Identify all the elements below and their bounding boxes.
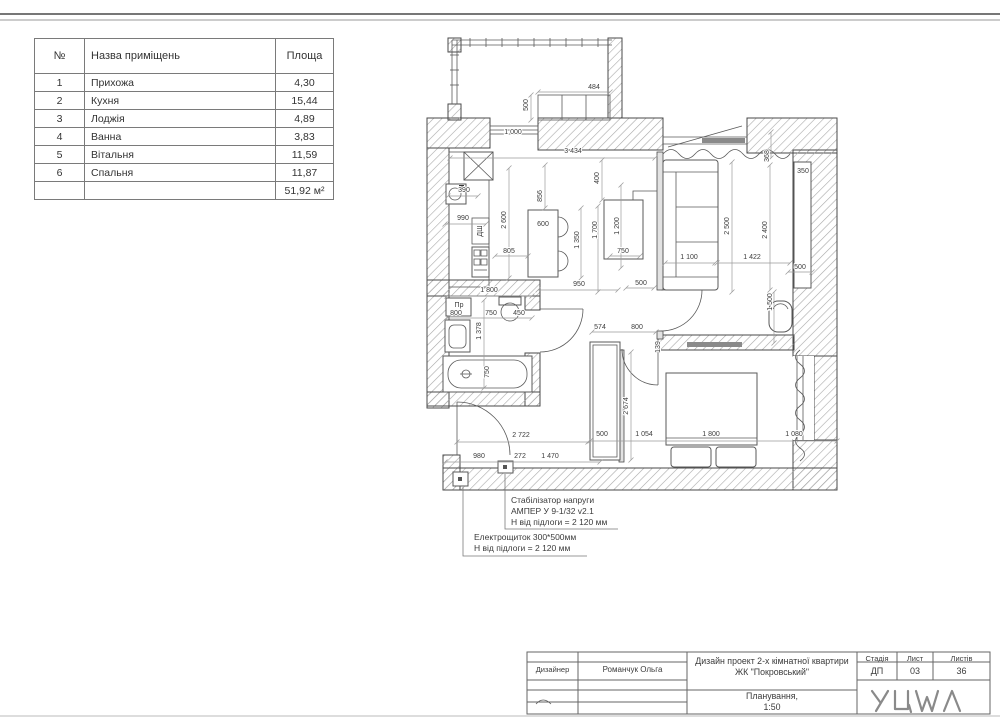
sofa — [663, 160, 718, 290]
designer-name: Романчук Ольга — [578, 665, 687, 674]
dimension-label: 350 — [797, 168, 809, 175]
dimension-label: Пр — [455, 302, 464, 309]
bathroom-door — [540, 309, 583, 352]
tv-unit — [604, 191, 657, 259]
table-cell-area: 3,83 — [276, 128, 334, 146]
table-header-row: № Назва приміщень Площа — [35, 39, 334, 74]
table-cell-name: Лоджія — [85, 110, 276, 128]
stabilizer-note-line2: АМПЕР У 9-1/32 v2.1 — [511, 506, 607, 517]
hall-wardrobe — [590, 342, 620, 460]
dimension-label: 500 — [596, 431, 608, 438]
dimension-label: 800 — [631, 324, 643, 331]
table-cell-num: 4 — [35, 128, 85, 146]
table-cell-area: 11,59 — [276, 146, 334, 164]
table-row: 4Ванна3,83 — [35, 128, 334, 146]
dimension-label: 1 350 — [574, 231, 581, 249]
dimension-label: 1 470 — [541, 453, 559, 460]
total-area-cell: 51,92 м² — [276, 182, 334, 200]
table-cell-num: 3 — [35, 110, 85, 128]
drawing-name: Планування, 1:50 — [689, 691, 855, 713]
dimension-label: 1 100 — [680, 254, 698, 261]
table-row: 2Кухня15,44 — [35, 92, 334, 110]
bath-sink — [445, 320, 470, 352]
room-areas-table: № Назва приміщень Площа 1Прихожа4,302Кух… — [34, 38, 334, 200]
dimension-label: 484 — [588, 84, 600, 91]
dimension-label: 750 — [484, 366, 491, 378]
dimension-label: 805 — [503, 248, 515, 255]
drawing-sheet: { "room_table": { "headers": {"num": "№"… — [0, 0, 1000, 727]
electrical-panel-box — [453, 472, 468, 486]
stabilizer-note-line1: Стабілізатор напруги — [511, 495, 607, 506]
electrical-panel-note: Електрощиток 300*500мм Н від підлоги = 2… — [474, 532, 576, 554]
stage-label: Стадія — [857, 654, 897, 663]
dimension-label: 1 000 — [504, 129, 522, 136]
col-header-name: Назва приміщень — [85, 39, 276, 74]
table-cell-num: 1 — [35, 74, 85, 92]
bedroom-door — [622, 349, 658, 385]
table-cell-num: 6 — [35, 164, 85, 182]
dimension-label: 2 674 — [623, 397, 630, 415]
dimension-label: 1 200 — [614, 217, 621, 235]
sheets-label: Листів — [933, 654, 990, 663]
dimension-label: 980 — [473, 453, 485, 460]
dimension-label: 1 500 — [767, 293, 774, 311]
stabilizer-box — [498, 461, 513, 473]
toilet — [499, 297, 521, 321]
table-cell-name: Вітальня — [85, 146, 276, 164]
dimension-label: 272 — [514, 453, 526, 460]
bed — [666, 373, 757, 467]
dimension-label: 950 — [573, 281, 585, 288]
dimension-label: 3 434 — [564, 148, 582, 155]
dimension-label: 500 — [523, 99, 530, 111]
stove — [472, 247, 489, 277]
table-row: 1Прихожа4,30 — [35, 74, 334, 92]
table-cell-name: Ванна — [85, 128, 276, 146]
entrance-door — [457, 402, 510, 455]
table-cell-num: 5 — [35, 146, 85, 164]
dimension-label: 600 — [537, 221, 549, 228]
stabilizer-note-line3: Н від підлоги = 2 120 мм — [511, 517, 607, 528]
table-total-row: 51,92 м² — [35, 182, 334, 200]
sheet-value: 03 — [897, 666, 933, 676]
dimension-label: 1 080 — [785, 431, 803, 438]
dimension-label: 574 — [594, 324, 606, 331]
drawing-name-line1: Планування, — [689, 691, 855, 702]
dimension-label: 2 400 — [762, 221, 769, 239]
dimension-label: 990 — [457, 215, 469, 222]
project-title-line1: Дизайн проект 2-х кімнатної квартири — [689, 656, 855, 667]
dimension-label: 1 800 — [702, 431, 720, 438]
table-cell-area: 4,30 — [276, 74, 334, 92]
empty-cell — [85, 182, 276, 200]
dimension-label: 2 500 — [724, 217, 731, 235]
dimension-label: 139 — [655, 341, 662, 353]
dimension-label: 400 — [594, 172, 601, 184]
designer-label: Дизайнер — [527, 665, 578, 674]
project-title: Дизайн проект 2-х кімнатної квартири ЖК … — [689, 656, 855, 678]
dimension-label: 368 — [764, 150, 771, 162]
dimension-label: 390 — [458, 187, 470, 194]
dimension-label: 800 — [450, 310, 462, 317]
dimension-label: 500 — [794, 264, 806, 271]
dimension-label: 1 422 — [743, 254, 761, 261]
sheet-label: Лист — [897, 654, 933, 663]
table-row: 3Лоджія4,89 — [35, 110, 334, 128]
table-cell-area: 15,44 — [276, 92, 334, 110]
dimension-label: 1 800 — [480, 287, 498, 294]
stage-value: ДП — [857, 666, 897, 676]
dimension-label: 1 054 — [635, 431, 653, 438]
sheets-value: 36 — [933, 666, 990, 676]
project-title-line2: ЖК "Покровський" — [689, 667, 855, 678]
stabilizer-note: Стабілізатор напруги АМПЕР У 9-1/32 v2.1… — [511, 495, 607, 528]
dimension-label: 750 — [485, 310, 497, 317]
radiator — [687, 342, 742, 347]
table-cell-num: 2 — [35, 92, 85, 110]
dimension-label: 2 600 — [501, 211, 508, 229]
table-row: 5Вітальня11,59 — [35, 146, 334, 164]
dimension-label: 856 — [537, 190, 544, 202]
yuwa-logo — [872, 691, 960, 712]
col-header-num: № — [35, 39, 85, 74]
fridge — [464, 152, 493, 180]
dimension-label: 1 700 — [592, 221, 599, 239]
dimension-label: 500 — [635, 280, 647, 287]
drawing-name-line2: 1:50 — [689, 702, 855, 713]
empty-cell — [35, 182, 85, 200]
dimension-label: 450 — [513, 310, 525, 317]
living-room-door — [661, 290, 702, 331]
dimension-label: 2 722 — [512, 432, 530, 439]
radiator — [702, 138, 745, 143]
dimension-label: 750 — [617, 248, 629, 255]
table-cell-area: 4,89 — [276, 110, 334, 128]
dimension-label: ДШ — [477, 225, 484, 236]
col-header-area: Площа — [276, 39, 334, 74]
dimension-label: 1 378 — [476, 322, 483, 340]
table-row: 6Спальня11,87 — [35, 164, 334, 182]
table-cell-name: Кухня — [85, 92, 276, 110]
table-cell-name: Спальня — [85, 164, 276, 182]
loggia-counter — [538, 95, 610, 120]
panel-note-line1: Електрощиток 300*500мм — [474, 532, 576, 543]
table-cell-area: 11,87 — [276, 164, 334, 182]
table-cell-name: Прихожа — [85, 74, 276, 92]
panel-note-line2: Н від підлоги = 2 120 мм — [474, 543, 576, 554]
